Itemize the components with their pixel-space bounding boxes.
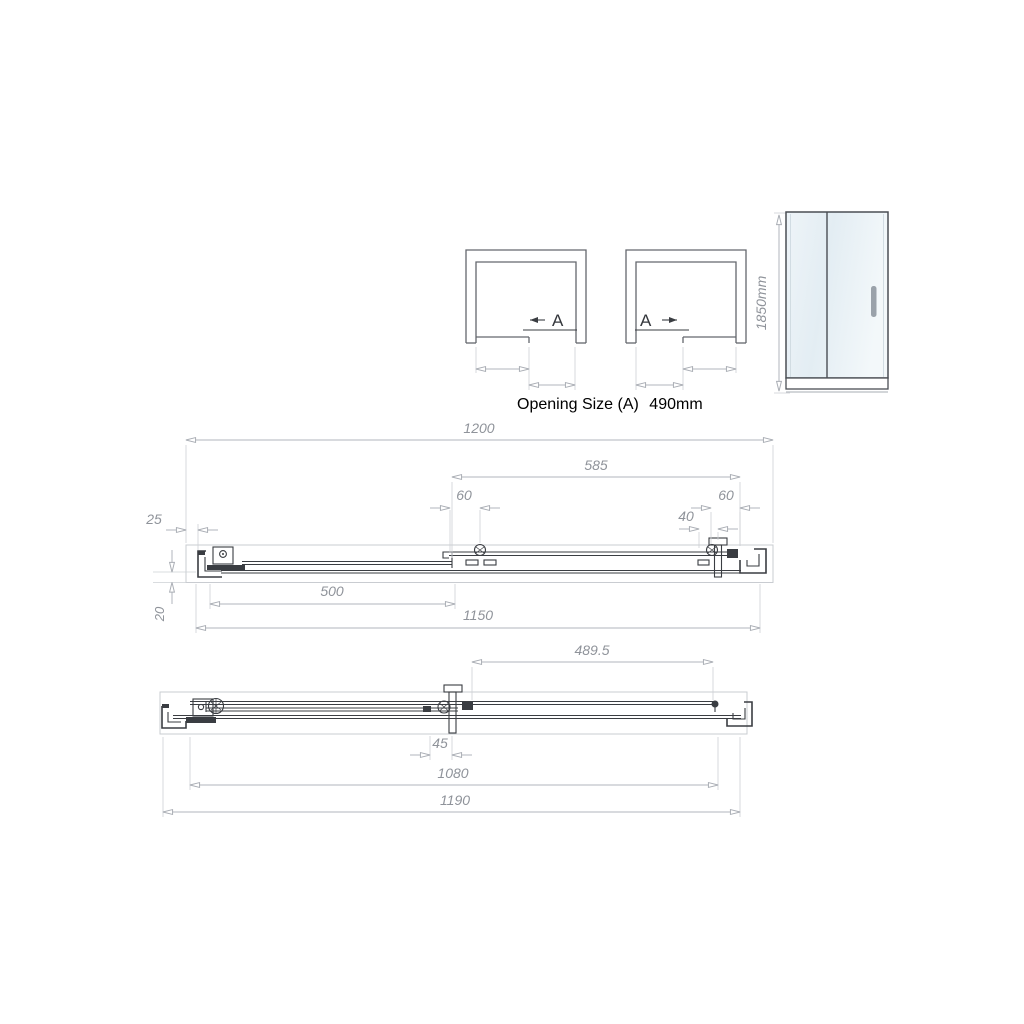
bottom-rail bbox=[786, 378, 888, 389]
top-view-right: A bbox=[626, 250, 746, 390]
ms-left-roller-bracket bbox=[207, 547, 245, 570]
elevation-view: 1850mm bbox=[753, 212, 888, 393]
dim-bs-overall: 1190 bbox=[440, 792, 470, 808]
panel-label-a-left: A bbox=[552, 311, 564, 330]
ms-fixed-panel bbox=[242, 552, 452, 568]
opening-size-label: Opening Size (A) bbox=[517, 396, 639, 413]
dim-ms-roller-right: 60 bbox=[718, 487, 734, 503]
ms-handle-knob bbox=[709, 538, 727, 577]
dim-ms-roller-left: 60 bbox=[456, 487, 472, 503]
opening-size-caption: Opening Size (A) 490mm bbox=[517, 396, 703, 413]
dim-ms-inner-width: 1150 bbox=[463, 607, 493, 623]
bs-roller-left bbox=[209, 699, 224, 714]
bs-sill-profile bbox=[173, 716, 741, 719]
elevation-height-dimension: 1850mm bbox=[753, 213, 790, 393]
bs-dim-45: 45 bbox=[410, 735, 472, 760]
middle-section-view: 1200 585 60 60 40 bbox=[145, 420, 773, 633]
bs-track bbox=[190, 702, 716, 705]
dim-ms-overall: 1200 bbox=[463, 420, 494, 436]
ms-dim-60-right: 60 bbox=[691, 487, 760, 546]
top-view-right-dims bbox=[636, 347, 736, 390]
dim-bs-handle-clearance: 45 bbox=[432, 735, 448, 751]
door-handle bbox=[871, 286, 877, 317]
dim-ms-fixed-glass: 500 bbox=[320, 583, 344, 599]
dim-elevation-height: 1850mm bbox=[753, 275, 769, 330]
panel-label-a-right: A bbox=[640, 311, 652, 330]
top-view-left-dims bbox=[476, 347, 575, 390]
ms-dim-500: 500 bbox=[210, 583, 455, 609]
bs-dim-489-5: 489.5 bbox=[472, 642, 713, 700]
dim-ms-wall-gap: 25 bbox=[145, 511, 162, 527]
ms-dim-40: 40 bbox=[678, 508, 738, 548]
ms-roller-left bbox=[466, 545, 496, 566]
ms-dim-1200: 1200 bbox=[186, 420, 773, 543]
technical-drawing: A A Opening Size (A) bbox=[0, 0, 1024, 1024]
bs-panel-hook bbox=[423, 706, 431, 712]
ms-dim-1150: 1150 bbox=[196, 584, 760, 633]
ms-end-cap bbox=[727, 549, 738, 558]
ms-sill-profile bbox=[221, 571, 741, 574]
ms-dim-60-left: 60 bbox=[430, 487, 500, 553]
slide-left-arrow-icon bbox=[530, 317, 545, 323]
bs-sliding-panel bbox=[206, 702, 458, 712]
bs-right-wall-profile bbox=[712, 701, 753, 727]
dim-ms-handle-offset: 40 bbox=[678, 508, 694, 524]
dim-bs-glass-span: 1080 bbox=[437, 765, 468, 781]
dim-ms-profile-depth: 20 bbox=[152, 606, 167, 622]
opening-size-value: 490mm bbox=[649, 396, 702, 413]
top-view-left: A bbox=[466, 250, 586, 390]
drawing-sheet: A A Opening Size (A) bbox=[0, 0, 1024, 1024]
slide-right-arrow-icon bbox=[662, 317, 677, 323]
bs-end-cap bbox=[462, 701, 473, 710]
ms-sliding-panel bbox=[443, 552, 728, 558]
dim-bs-opening: 489.5 bbox=[574, 642, 609, 658]
bs-dim-1080: 1080 bbox=[190, 737, 718, 790]
dim-ms-sliding-panel: 585 bbox=[584, 457, 608, 473]
bottom-section-view: 489.5 45 1080 1190 bbox=[160, 642, 752, 817]
ms-dim-25: 25 bbox=[145, 511, 218, 550]
ms-right-wall-profile bbox=[740, 549, 766, 573]
ms-dim-20: 20 bbox=[152, 550, 196, 622]
